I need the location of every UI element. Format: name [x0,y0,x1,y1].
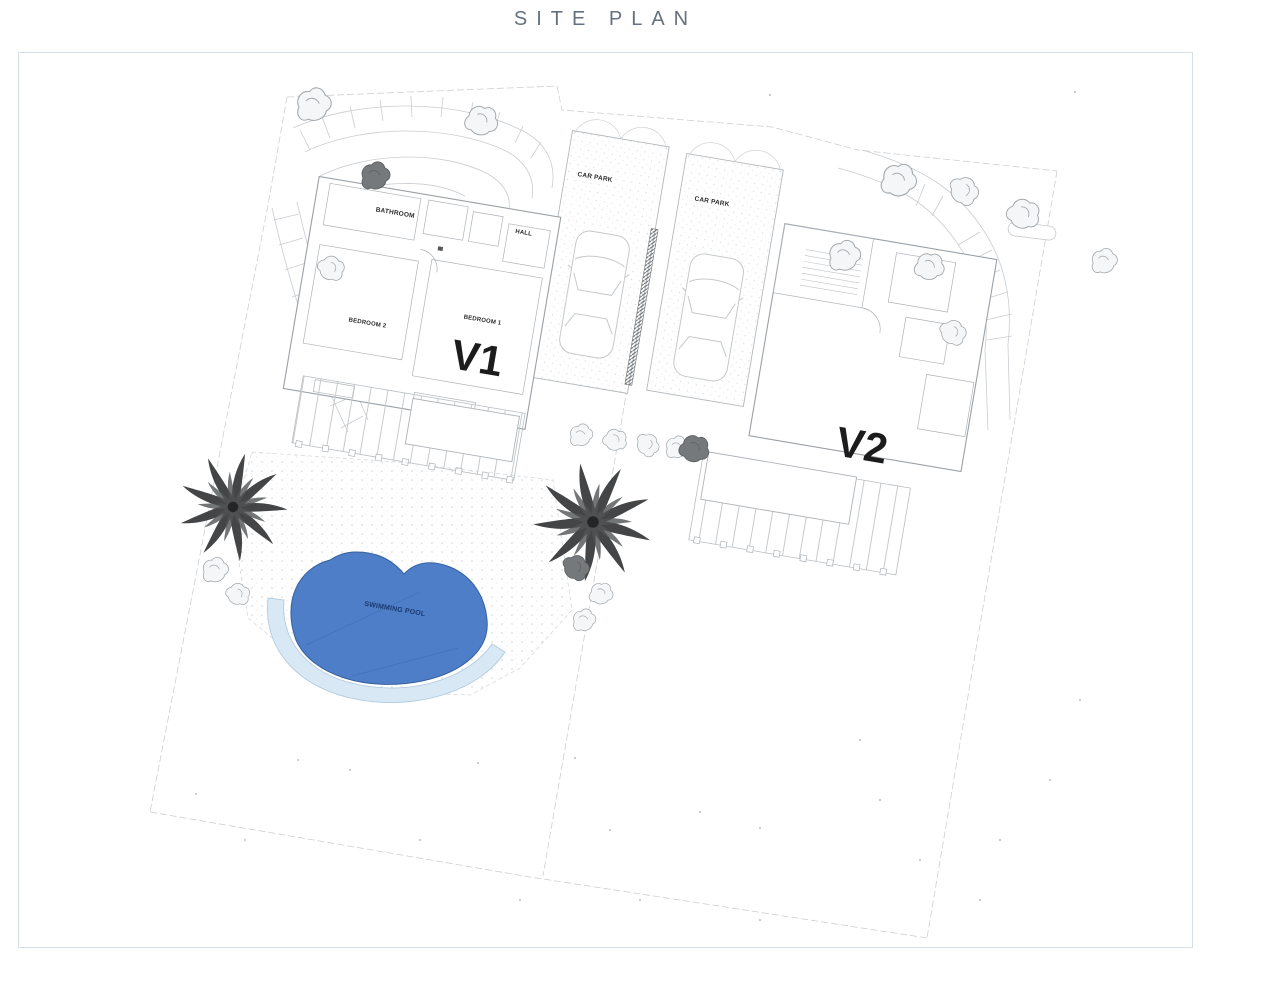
site-plan-drawing: CAR PARK CAR PARK BATHROOM HALL BEDROOM … [19,53,1192,947]
pool-water [291,552,487,684]
swimming-pool: SWIMMING POOL [291,552,487,684]
villa2-label: V2 [833,418,891,473]
villa2-building: V2 [747,224,997,486]
villa1-label: V1 [448,330,506,385]
page-title: SITE PLAN [18,8,1193,31]
site-plan-panel: CAR PARK CAR PARK BATHROOM HALL BEDROOM … [18,52,1193,948]
